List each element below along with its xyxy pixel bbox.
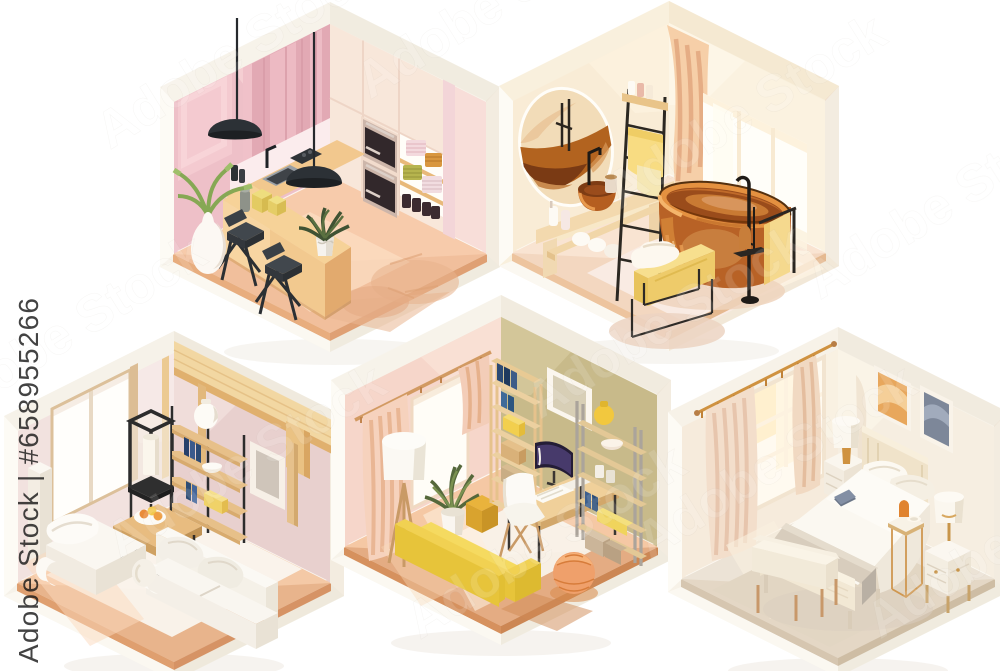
svg-text:Adobe Stock | #658955266: Adobe Stock | #658955266 xyxy=(13,297,44,663)
